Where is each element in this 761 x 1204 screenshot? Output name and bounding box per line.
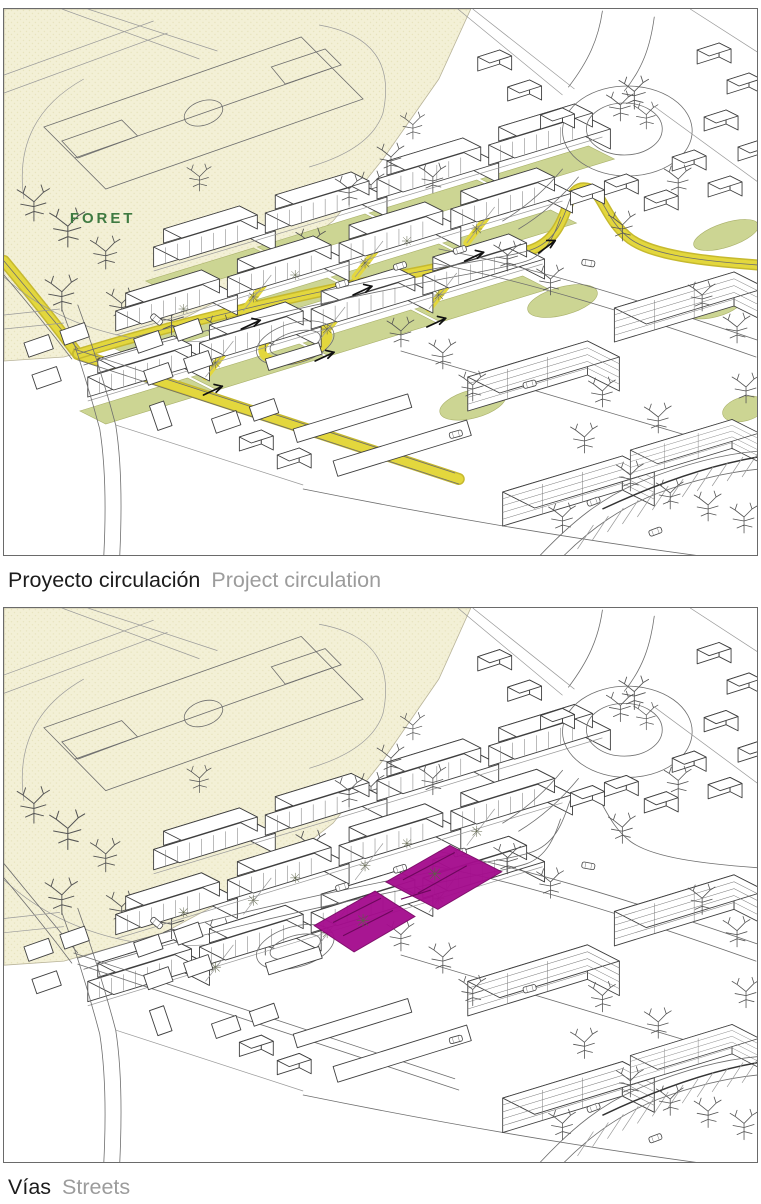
caption-primary: Vías [8,1176,51,1200]
caption-secondary: Streets [62,1176,130,1200]
panel-project-circulation: FORET [3,8,758,556]
caption-project-circulation: Proyecto circulación Project circulation [3,556,758,607]
caption-streets: Vías Streets [3,1163,758,1204]
page: FORET Proyecto circulación Project circu… [0,0,761,1204]
streets-drawing [4,608,757,1162]
project-circulation-drawing: FORET [4,9,757,555]
foret-label: FORET [70,210,136,227]
caption-secondary: Project circulation [211,569,381,593]
panel-streets [3,607,758,1163]
caption-primary: Proyecto circulación [8,569,200,593]
